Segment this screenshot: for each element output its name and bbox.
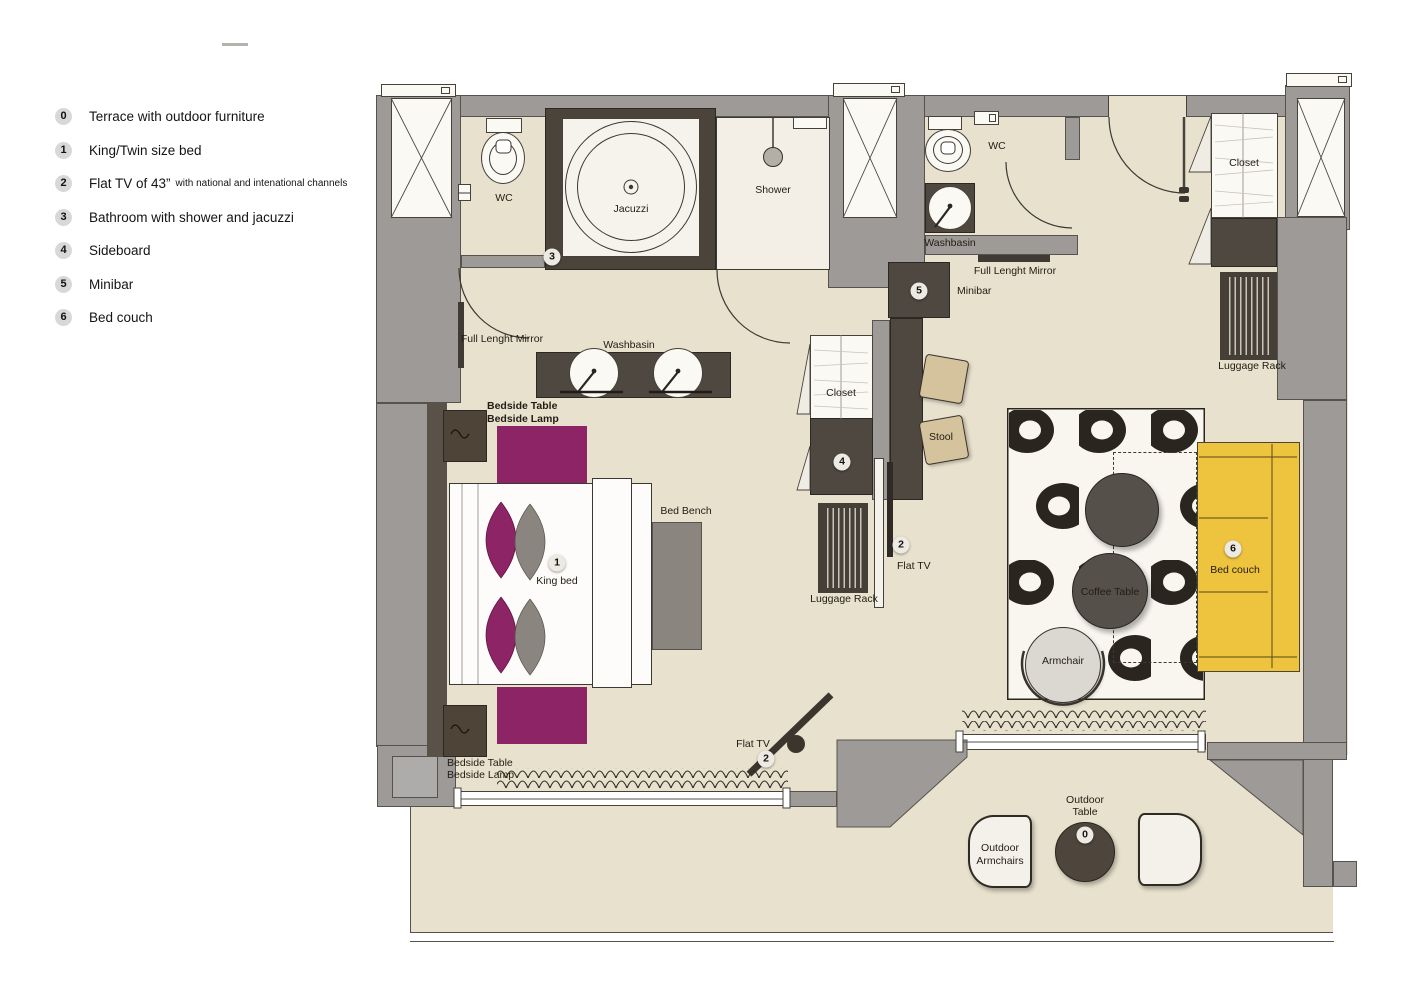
marker-sideboard: 4 — [834, 454, 851, 471]
exterior-mask — [1333, 755, 1414, 935]
closet-mid — [810, 335, 873, 419]
sideboard-counter — [890, 318, 923, 500]
marker-flat-tv-terrace: 2 — [758, 751, 775, 768]
full-length-mirror — [978, 255, 1050, 262]
legend-item: 3 Bathroom with shower and jacuzzi — [55, 209, 347, 226]
bed-couch-label: Bed couch — [1210, 564, 1260, 576]
full-length-mirror-label: Full Lenght Mirror — [461, 333, 543, 345]
wc-label: WC — [988, 140, 1006, 152]
wall-right-notch — [1333, 861, 1357, 887]
wall-right-lower — [1303, 745, 1333, 887]
flat-tv-label: Flat TV — [736, 738, 770, 750]
legend-item-label: Terrace with outdoor furniture — [89, 109, 265, 124]
legend-item: 6 Bed couch — [55, 309, 347, 326]
bedside-table — [443, 705, 487, 757]
marker-minibar: 5 — [911, 283, 928, 300]
legend-number-badge: 5 — [55, 276, 72, 293]
luggage-rack-label: Luggage Rack — [810, 593, 878, 605]
legend-item-label: Bed couch — [89, 310, 153, 325]
bed-foot-runner — [592, 478, 632, 688]
stray-mark — [222, 43, 248, 46]
minibar-label: Minibar — [957, 285, 991, 297]
bedside-table-label: Bedside Table — [487, 400, 557, 412]
washbasin-bowl — [569, 348, 619, 398]
outdoor-table-label: Table — [1072, 806, 1097, 818]
king-bed-label: King bed — [536, 575, 577, 587]
shaft-box-mid — [843, 98, 897, 218]
bed-bench-label: Bed Bench — [660, 505, 711, 517]
legend-item-label: Flat TV of 43” — [89, 176, 171, 191]
legend-number-badge: 3 — [55, 209, 72, 226]
bed-bench — [652, 522, 702, 650]
legend-item-sublabel: with national and intenational channels — [176, 178, 348, 189]
coffee-table — [1085, 473, 1159, 547]
washbasin-bowl — [653, 348, 703, 398]
toilet-bowl-inner — [489, 142, 517, 175]
legend-item-label: Sideboard — [89, 243, 151, 258]
corner-window-box — [392, 756, 438, 798]
bedside-lamp-label: Bedside Lamp — [487, 413, 559, 425]
legend-item-label: King/Twin size bed — [89, 143, 202, 158]
window-frame-tick — [1338, 76, 1347, 83]
toilet-tank — [928, 116, 962, 130]
shower-label: Shower — [755, 184, 791, 196]
washbasin-label: Washbasin — [924, 237, 976, 249]
luggage-rack — [818, 503, 868, 593]
jacuzzi-label: Jacuzzi — [613, 203, 648, 215]
toilet-tank — [486, 118, 522, 133]
marker-outdoor-table: 0 — [1077, 827, 1094, 844]
headboard-upholstery — [497, 687, 587, 744]
wall-wc1-bottom — [461, 255, 545, 268]
legend-number-badge: 6 — [55, 309, 72, 326]
window-left — [456, 791, 789, 806]
bedside-table — [443, 410, 487, 462]
window-frame-tick — [441, 87, 450, 94]
luggage-rack — [1220, 272, 1277, 360]
wall-stub-bottom — [789, 791, 837, 807]
bedside-lamp-label: Bedside Lamp — [447, 769, 514, 781]
marker-bed-couch: 6 — [1225, 541, 1242, 558]
outdoor-table-label: Outdoor — [1066, 794, 1104, 806]
entry-cabinet — [1211, 218, 1277, 267]
marker-king-bed: 1 — [549, 555, 566, 572]
bed-couch — [1197, 442, 1300, 672]
wall-left-lower — [376, 403, 428, 747]
entrance-opening — [1108, 96, 1187, 117]
wall-band-se — [1207, 742, 1347, 760]
window-right — [960, 734, 1206, 750]
armchair-label: Armchair — [1042, 655, 1084, 667]
stool — [919, 354, 970, 405]
legend-item-label: Bathroom with shower and jacuzzi — [89, 210, 294, 225]
outdoor-armchair — [1138, 813, 1202, 886]
coffee-table-label: Coffee Table — [1081, 586, 1140, 598]
shaft-box-left — [391, 98, 452, 218]
washbasin-bowl — [928, 186, 972, 230]
legend-item: 0 Terrace with outdoor furniture — [55, 108, 347, 125]
shower-shelf — [793, 117, 827, 129]
wall-right-upper — [1277, 217, 1347, 400]
washbasin-label: Washbasin — [603, 339, 655, 351]
closet-label: Closet — [1229, 157, 1259, 169]
wall-right-mid — [1303, 400, 1347, 745]
legend-item: 2 Flat TV of 43” with national and inten… — [55, 175, 347, 192]
jacuzzi-tub-inner — [577, 133, 685, 241]
legend-number-badge: 4 — [55, 242, 72, 259]
floorplan-page: 0 Terrace with outdoor furniture 1 King/… — [0, 0, 1414, 1000]
tv-stand-base — [787, 735, 805, 753]
outdoor-armchairs-label: Armchairs — [976, 855, 1023, 867]
stool-label: Stool — [929, 431, 953, 443]
flush-button-icon — [989, 114, 996, 122]
window-frame-tick — [891, 86, 900, 93]
legend-item: 5 Minibar — [55, 276, 347, 293]
marker-flat-tv-wall: 2 — [893, 537, 910, 554]
legend-item-label: Minibar — [89, 277, 133, 292]
tv-panel — [874, 458, 884, 608]
closet-label: Closet — [826, 387, 856, 399]
terrace-railing-line — [410, 941, 1334, 942]
toilet-paper-holder-icon — [458, 184, 471, 201]
legend: 0 Terrace with outdoor furniture 1 King/… — [55, 108, 347, 343]
toilet-bowl-inner — [933, 136, 963, 164]
legend-number-badge: 2 — [55, 175, 72, 192]
legend-number-badge: 0 — [55, 108, 72, 125]
wall-wc2-right — [1065, 117, 1080, 160]
flat-tv-label: Flat TV — [897, 560, 931, 572]
shaft-box-right — [1297, 98, 1345, 217]
luggage-rack-label: Luggage Rack — [1218, 360, 1286, 372]
wc-label: WC — [495, 192, 513, 204]
marker-bathroom: 3 — [544, 249, 561, 266]
legend-item: 4 Sideboard — [55, 242, 347, 259]
bedside-table-label: Bedside Table — [447, 757, 513, 769]
headboard-upholstery — [497, 426, 587, 486]
legend-number-badge: 1 — [55, 142, 72, 159]
legend-item: 1 King/Twin size bed — [55, 142, 347, 159]
full-length-mirror-label: Full Lenght Mirror — [974, 265, 1056, 277]
outdoor-armchairs-label: Outdoor — [981, 842, 1019, 854]
